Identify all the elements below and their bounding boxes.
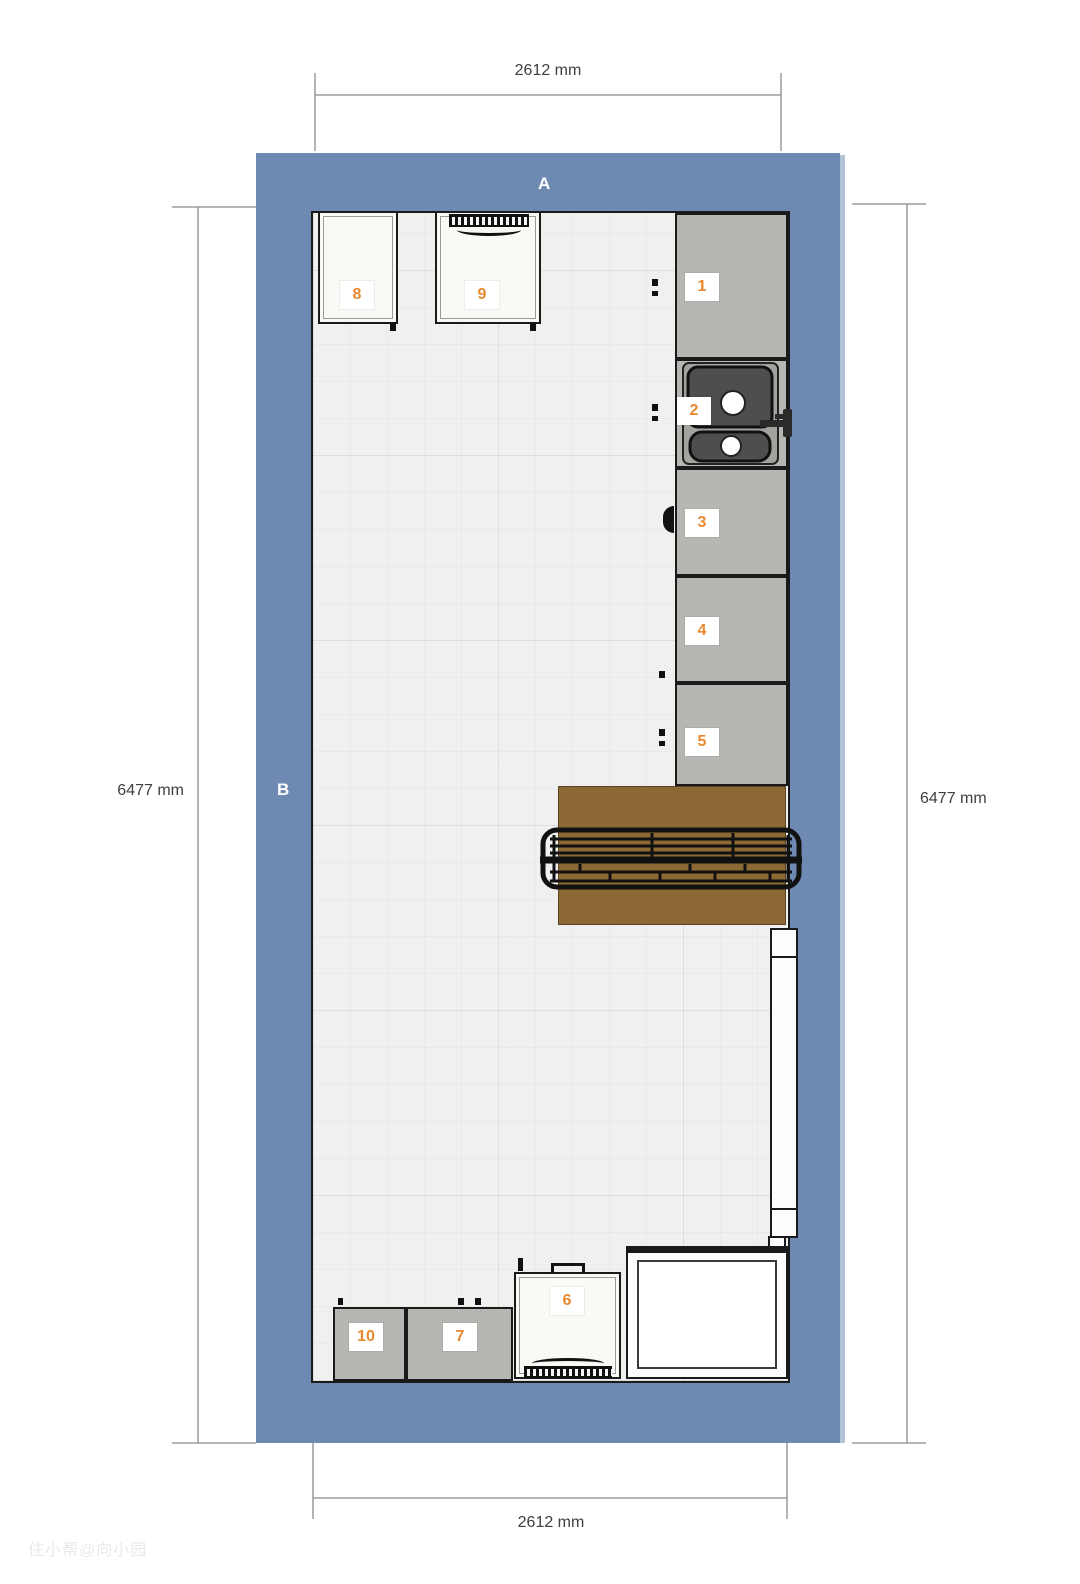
item-badge-8: 8: [340, 281, 374, 309]
hinge-mark: [338, 1298, 343, 1305]
dimension-bottom: 2612 mm: [451, 1514, 651, 1532]
item-badge-9: 9: [465, 281, 499, 309]
hinge-mark: [458, 1298, 464, 1305]
item-badge-1: 1: [685, 273, 719, 301]
foot-mark: [530, 322, 536, 331]
wall-label-b: B: [277, 780, 289, 800]
item-badge-3: 3: [685, 509, 719, 537]
appliance-9-vent-arc: [457, 224, 521, 236]
hinge-mark: [652, 416, 658, 421]
item-badge-5: 5: [685, 728, 719, 756]
handle-mark: [663, 506, 674, 533]
counter-appliance-box[interactable]: [626, 1246, 788, 1379]
dimension-right: 6477 mm: [920, 790, 1030, 808]
refrigerator-handle: [551, 1263, 585, 1273]
item-badge-2: 2: [677, 397, 711, 425]
dimension-left: 6477 mm: [88, 782, 184, 800]
counter-appliance-box-inner: [637, 1260, 777, 1369]
hinge-mark: [659, 729, 665, 736]
dimension-top: 2612 mm: [448, 62, 648, 80]
floor-plan-canvas: 2612 mm 2612 mm 6477 mm 6477 mm A B: [0, 0, 1080, 1584]
hinge-mark: [659, 671, 665, 678]
window[interactable]: [770, 928, 798, 1238]
item-badge-4: 4: [685, 617, 719, 645]
wall-label-a: A: [538, 174, 550, 194]
hinge-mark: [518, 1258, 523, 1271]
item-badge-7: 7: [443, 1323, 477, 1351]
item-badge-6: 6: [550, 1287, 584, 1315]
window-bar-bottom: [772, 1208, 796, 1210]
hinge-mark: [659, 741, 665, 746]
bench[interactable]: [540, 827, 802, 890]
foot-mark: [390, 322, 396, 331]
hinge-mark: [652, 291, 658, 296]
item-badge-10: 10: [349, 1323, 383, 1351]
refrigerator-vent: [524, 1366, 612, 1378]
hinge-mark: [652, 279, 658, 286]
window-bar-top: [772, 956, 796, 958]
watermark: 住小帮@向小园: [28, 1536, 147, 1560]
hinge-mark: [475, 1298, 481, 1305]
wall-outer-highlight: [840, 155, 845, 1443]
hinge-mark: [652, 404, 658, 411]
